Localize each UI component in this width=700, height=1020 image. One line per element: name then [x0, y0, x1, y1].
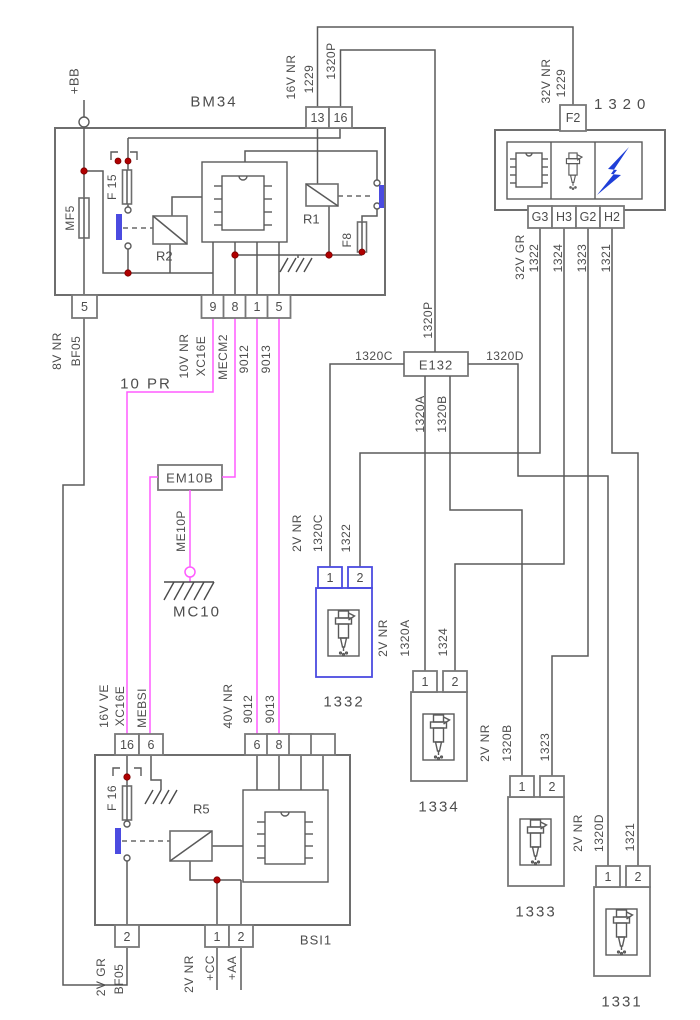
wire-label-32v-nr: 32V NR	[539, 58, 553, 103]
wire-label-1320c-left: 1320C	[355, 349, 393, 363]
inj1331-pin2: 2	[635, 870, 642, 884]
bsi-pin-6-left: 6	[148, 738, 155, 752]
inj1332-feed: 1320C	[311, 514, 325, 552]
ecu-pin-h2: H2	[604, 210, 620, 224]
bsi-pin-6: 6	[254, 738, 261, 752]
bsi-pin-2: 2	[238, 930, 245, 944]
inj1332-pin2: 2	[357, 571, 364, 585]
wire-1321	[612, 228, 638, 866]
wire-label-cc: +CC	[203, 955, 217, 981]
battery-label: +BB	[67, 68, 82, 94]
inj1334-feed: 1320A	[398, 619, 412, 656]
wire-label-32v-gr: 32V GR	[513, 234, 527, 280]
contact-icon	[125, 207, 131, 213]
wire-1324	[455, 228, 564, 671]
em10b-title: EM10B	[166, 471, 214, 486]
contact-icon	[125, 243, 131, 249]
inj1334-cmd: 1324	[436, 628, 450, 657]
wire-label-mecm2: MECM2	[216, 334, 230, 380]
fuse-mf5-label: MF5	[63, 205, 77, 231]
inj1331-pin1: 1	[605, 870, 612, 884]
bsi1-internals	[113, 768, 328, 883]
bsi-pin-2-left: 2	[124, 930, 131, 944]
wire-label-1320p: 1320P	[324, 42, 338, 79]
injector-1331-title: 1331	[601, 994, 642, 1011]
schematic-canvas: BM34 1320 E132 EM10B MC10 10 PR 1332 133…	[0, 0, 700, 1020]
lightning-icon	[597, 147, 629, 195]
wire-label-xc16e: XC16E	[194, 336, 208, 377]
chip-icon	[202, 162, 287, 242]
wire-label-9013-bsi: 9013	[263, 695, 277, 724]
bm34-pin-9: 9	[210, 300, 217, 314]
wire-label-bf05: BF05	[69, 336, 83, 367]
bm34-internals	[79, 117, 384, 276]
wire-label-me10p: ME10P	[174, 510, 188, 552]
ground-icon	[145, 790, 177, 804]
inj1334-pin2: 2	[452, 675, 459, 689]
ecu-title: 1320	[594, 96, 651, 113]
switch-bar-icon	[115, 828, 121, 854]
inj1332-gauge: 2V NR	[290, 514, 304, 552]
ground-icon	[164, 582, 214, 600]
wire-label-9013: 9013	[259, 345, 273, 374]
wire-label-1229b: 1229	[554, 69, 568, 98]
bsi1-title: BSI1	[300, 933, 332, 948]
ecu-internals	[507, 142, 642, 199]
inj1331-gauge: 2V NR	[571, 814, 585, 852]
chip-icon	[243, 790, 328, 882]
contact-icon	[124, 855, 130, 861]
wire-label-8v-nr: 8V NR	[50, 332, 64, 370]
bm34-title: BM34	[190, 94, 237, 111]
switch-bar-icon	[116, 214, 122, 240]
wire-label-1320p-in: 1320P	[421, 301, 435, 338]
inj1334-pin1: 1	[422, 675, 429, 689]
inj1334-gauge: 2V NR	[376, 619, 390, 657]
wire-label-1320a: 1320A	[413, 395, 427, 432]
inj1331-feed: 1320D	[592, 814, 606, 852]
injector-1332-title: 1332	[323, 694, 364, 711]
bm34-pin-5-left: 5	[81, 300, 88, 314]
ecu-pin-h3: H3	[556, 210, 572, 224]
wire-label-1320b: 1320B	[435, 395, 449, 432]
ecu-pin-f2: F2	[566, 111, 581, 125]
fuse-f8-label: F8	[340, 232, 354, 247]
wire-label-10v-nr: 10V NR	[177, 333, 191, 378]
ground-terminal-ring	[185, 567, 195, 577]
wire-label-16v-ve: 16V VE	[97, 684, 111, 728]
fuse-f15-label: F 15	[105, 174, 119, 200]
inj1333-pin2: 2	[549, 780, 556, 794]
injector-1332	[316, 567, 372, 677]
wire-mebsi	[150, 477, 158, 734]
inj1333-feed: 1320B	[500, 724, 514, 761]
wire-label-1229: 1229	[302, 65, 316, 94]
wire-label-9012: 9012	[237, 345, 251, 374]
wire-1320d	[468, 364, 608, 866]
inj1331-cmd: 1321	[623, 823, 637, 852]
wire-label-aa: +AA	[225, 956, 239, 981]
chip-icon	[510, 153, 548, 187]
injector-icon	[336, 611, 355, 655]
bsi-pin-16: 16	[120, 738, 134, 752]
wire-label-mebsi: MEBSI	[135, 688, 149, 728]
wire-label-1323: 1323	[575, 244, 589, 273]
inj1332-pin1: 1	[327, 571, 334, 585]
wiring-diagram: BM34 1320 E132 EM10B MC10 10 PR 1332 133…	[0, 0, 700, 1020]
wire-label-2v-nr-bsi: 2V NR	[182, 955, 196, 993]
injector-1333	[508, 776, 564, 886]
ground-icon	[280, 258, 312, 272]
wire-label-bf05-bsi: BF05	[112, 964, 126, 995]
switch-bar-icon	[379, 185, 384, 208]
injector-1333-title: 1333	[515, 904, 556, 921]
fuse-f16-label: F 16	[105, 785, 119, 811]
relay-r5-label: R5	[193, 802, 210, 817]
bsi-pin-1: 1	[214, 930, 221, 944]
injector-1334	[411, 671, 467, 781]
injector-1331	[594, 866, 650, 976]
inj1333-pin1: 1	[519, 780, 526, 794]
wire-label-2v-gr: 2V GR	[94, 958, 108, 997]
harness-label: 10 PR	[120, 376, 172, 393]
terminal-bracket-icon	[113, 768, 120, 776]
wire-label-16v-nr: 16V NR	[284, 54, 298, 99]
wire-1323	[552, 228, 588, 776]
wire-label-1320d-right: 1320D	[486, 349, 524, 363]
mc10-ground	[164, 582, 214, 600]
bsi1-box	[95, 755, 350, 925]
wire-1229	[318, 27, 574, 107]
e132-title: E132	[419, 358, 453, 373]
inj1333-gauge: 2V NR	[478, 724, 492, 762]
bsi-pin-8: 8	[276, 738, 283, 752]
battery-terminal-icon	[79, 117, 89, 127]
wire-label-40v-nr: 40V NR	[221, 683, 235, 728]
relay-r1-label: R1	[303, 212, 320, 227]
terminal-bracket-icon	[134, 768, 141, 776]
inj1332-cmd: 1322	[339, 524, 353, 553]
wire-label-1321: 1321	[599, 244, 613, 273]
wire-label-1322: 1322	[527, 244, 541, 273]
wire-label-1324: 1324	[551, 244, 565, 273]
contact-icon	[124, 821, 130, 827]
bm34-pin-8: 8	[232, 300, 239, 314]
bm34-pin-1: 1	[254, 300, 261, 314]
wire-label-xc16e-bsi: XC16E	[113, 686, 127, 727]
injector-icon	[566, 153, 582, 189]
inj1333-cmd: 1323	[538, 733, 552, 762]
bm34-pin-5: 5	[276, 300, 283, 314]
bm34-pin-16: 16	[334, 111, 348, 125]
terminal-bracket-icon	[130, 152, 137, 160]
mc10-title: MC10	[173, 604, 221, 621]
wire-label-9012-bsi: 9012	[241, 695, 255, 724]
ecu-pin-g2: G2	[580, 210, 597, 224]
bm34-pin-13: 13	[311, 111, 325, 125]
relay-r2-label: R2	[156, 249, 173, 264]
injector-1334-title: 1334	[418, 799, 459, 816]
ecu-pin-g3: G3	[532, 210, 549, 224]
